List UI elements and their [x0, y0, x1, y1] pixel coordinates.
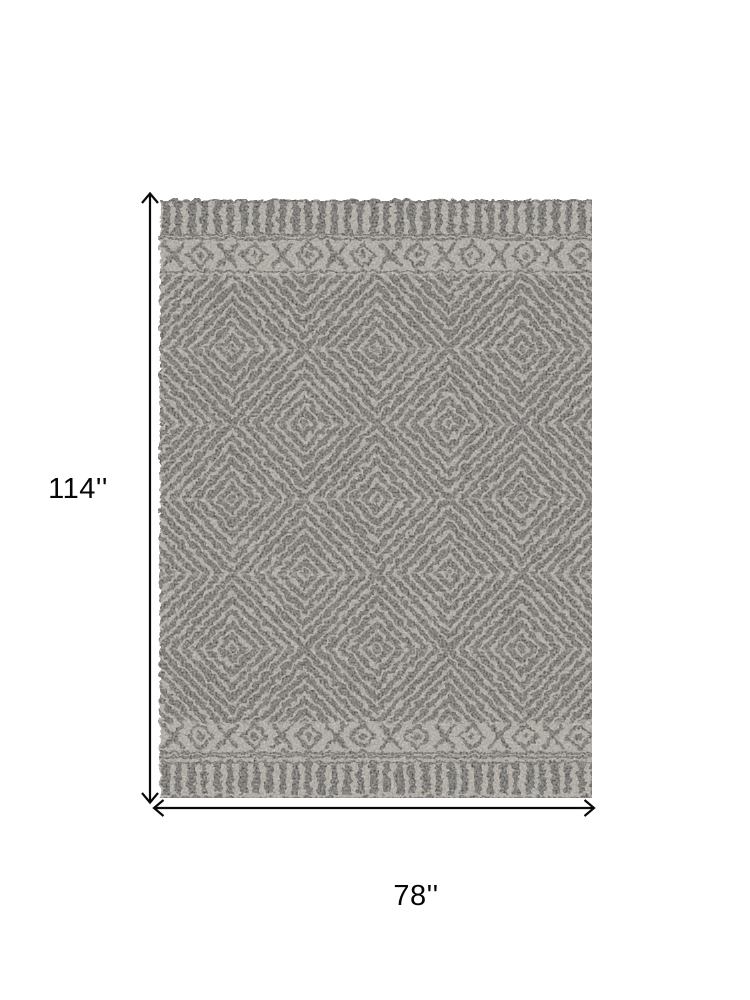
rug-weave-texture [158, 198, 592, 798]
rug-top-motif-band [158, 235, 592, 272]
rug-bottom-motif-band [158, 722, 592, 759]
product-dimension-view: 114'' 78'' [0, 0, 750, 1000]
rug-photo [158, 198, 592, 798]
rug-top-stripe-border [158, 201, 592, 231]
height-dimension-label: 114'' [28, 472, 128, 506]
width-dimension-label: 78'' [366, 879, 466, 913]
rug-bottom-stripe-border [158, 762, 592, 792]
width-dimension-arrow [149, 797, 599, 819]
height-dimension-arrow [139, 189, 161, 807]
rug-top-edge [158, 198, 592, 201]
